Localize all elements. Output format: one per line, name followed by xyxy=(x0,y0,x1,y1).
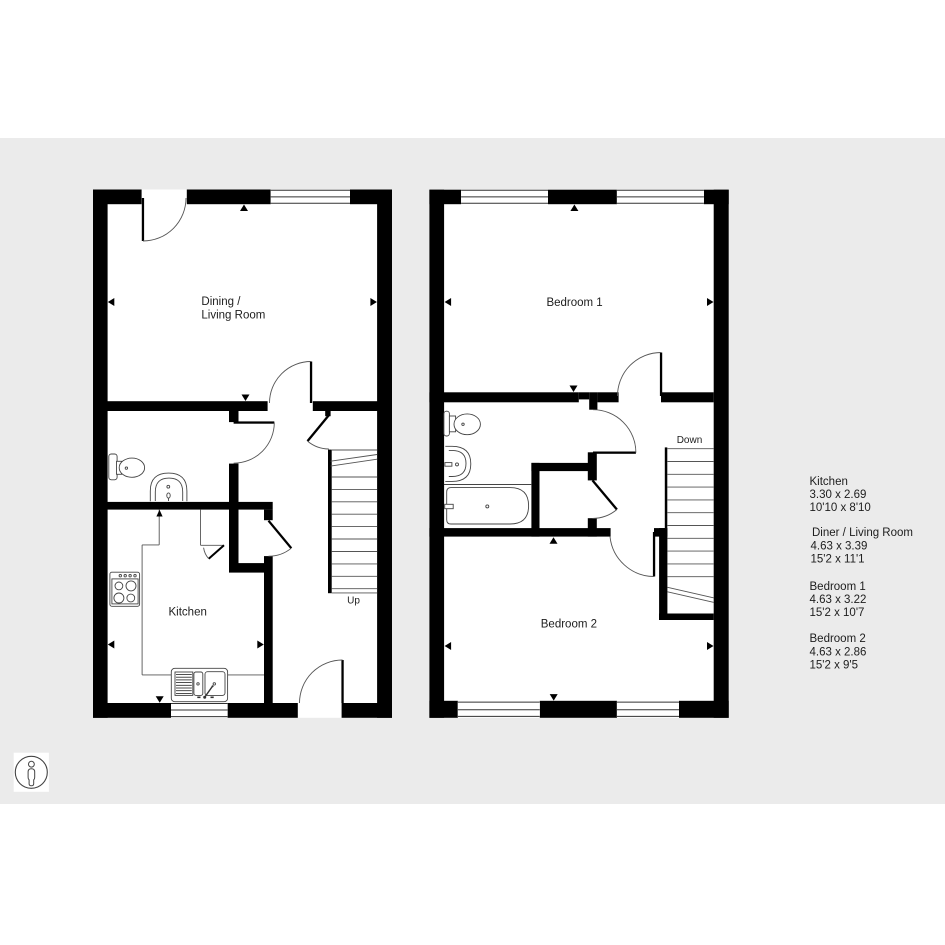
svg-text:Diner / Living Room: Diner / Living Room xyxy=(812,527,913,539)
svg-text:Bedroom 2: Bedroom 2 xyxy=(541,619,597,631)
svg-text:Up: Up xyxy=(347,596,360,607)
svg-text:Living Room: Living Room xyxy=(201,309,265,321)
svg-text:Bedroom 2: Bedroom 2 xyxy=(810,633,866,645)
svg-text:Kitchen: Kitchen xyxy=(810,476,848,488)
svg-text:Bedroom 1: Bedroom 1 xyxy=(810,581,866,593)
svg-text:4.63 x 3.39: 4.63 x 3.39 xyxy=(811,540,868,552)
svg-text:15'2 x 10'7: 15'2 x 10'7 xyxy=(810,607,865,619)
svg-text:4.63 x 3.22: 4.63 x 3.22 xyxy=(810,594,867,606)
svg-text:4.63 x 2.86: 4.63 x 2.86 xyxy=(810,646,867,658)
svg-text:3.30 x 2.69: 3.30 x 2.69 xyxy=(810,489,867,501)
svg-text:15'2 x 9'5: 15'2 x 9'5 xyxy=(810,660,859,672)
svg-text:Kitchen: Kitchen xyxy=(169,606,207,618)
svg-text:15'2 x 11'1: 15'2 x 11'1 xyxy=(811,554,865,566)
svg-text:Dining /: Dining / xyxy=(201,296,241,308)
svg-text:10'10 x 8'10: 10'10 x 8'10 xyxy=(810,502,871,514)
svg-text:Bedroom 1: Bedroom 1 xyxy=(546,297,602,309)
svg-text:Down: Down xyxy=(677,435,703,446)
